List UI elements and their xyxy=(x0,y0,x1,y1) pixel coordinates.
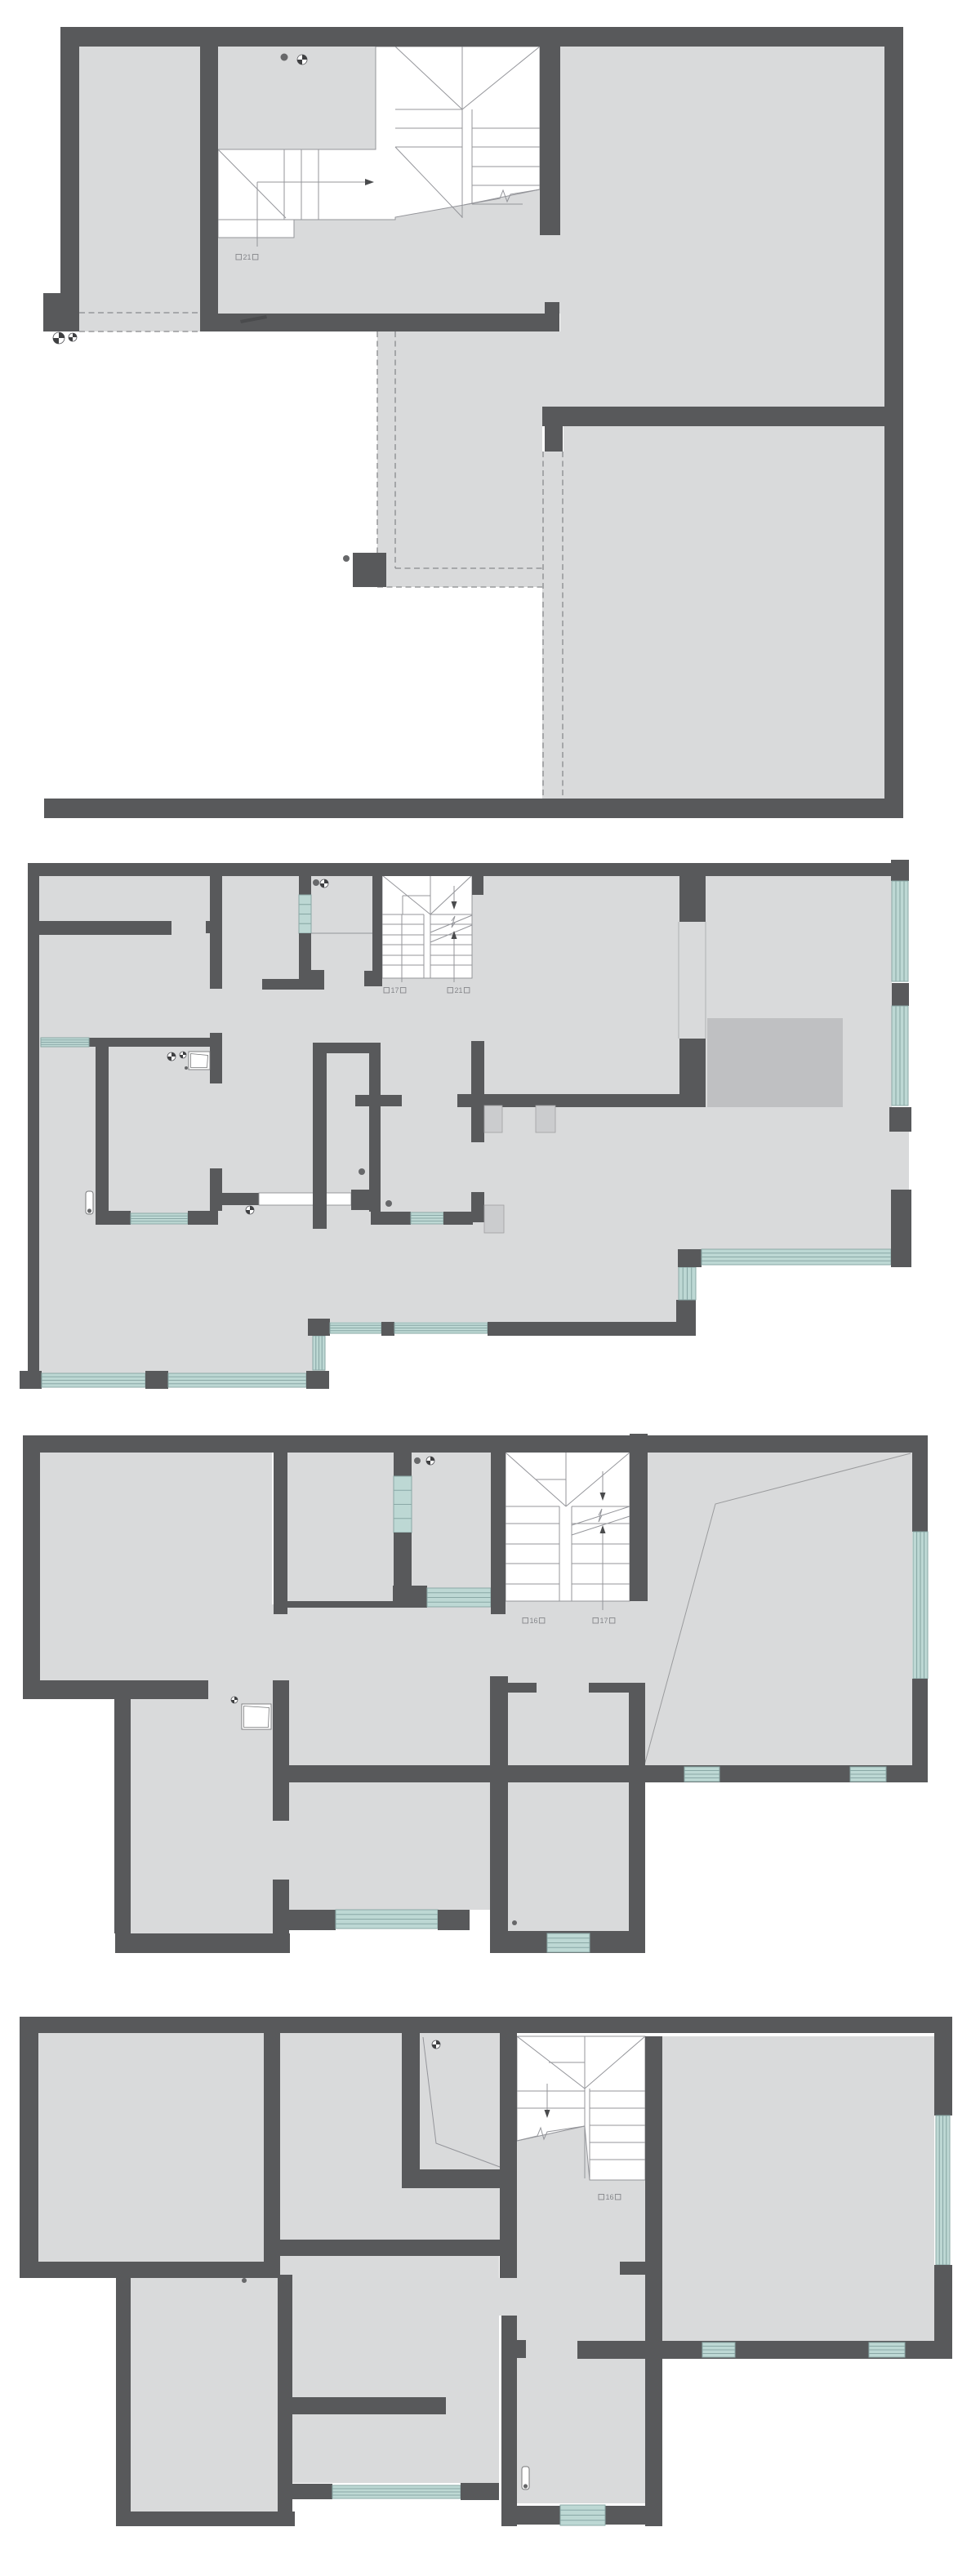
svg-text:16: 16 xyxy=(530,1617,538,1625)
svg-text:17: 17 xyxy=(391,986,399,994)
svg-text:21: 21 xyxy=(243,253,252,261)
svg-text:16: 16 xyxy=(606,2193,614,2201)
svg-text:17: 17 xyxy=(600,1617,608,1625)
svg-text:21: 21 xyxy=(455,986,463,994)
